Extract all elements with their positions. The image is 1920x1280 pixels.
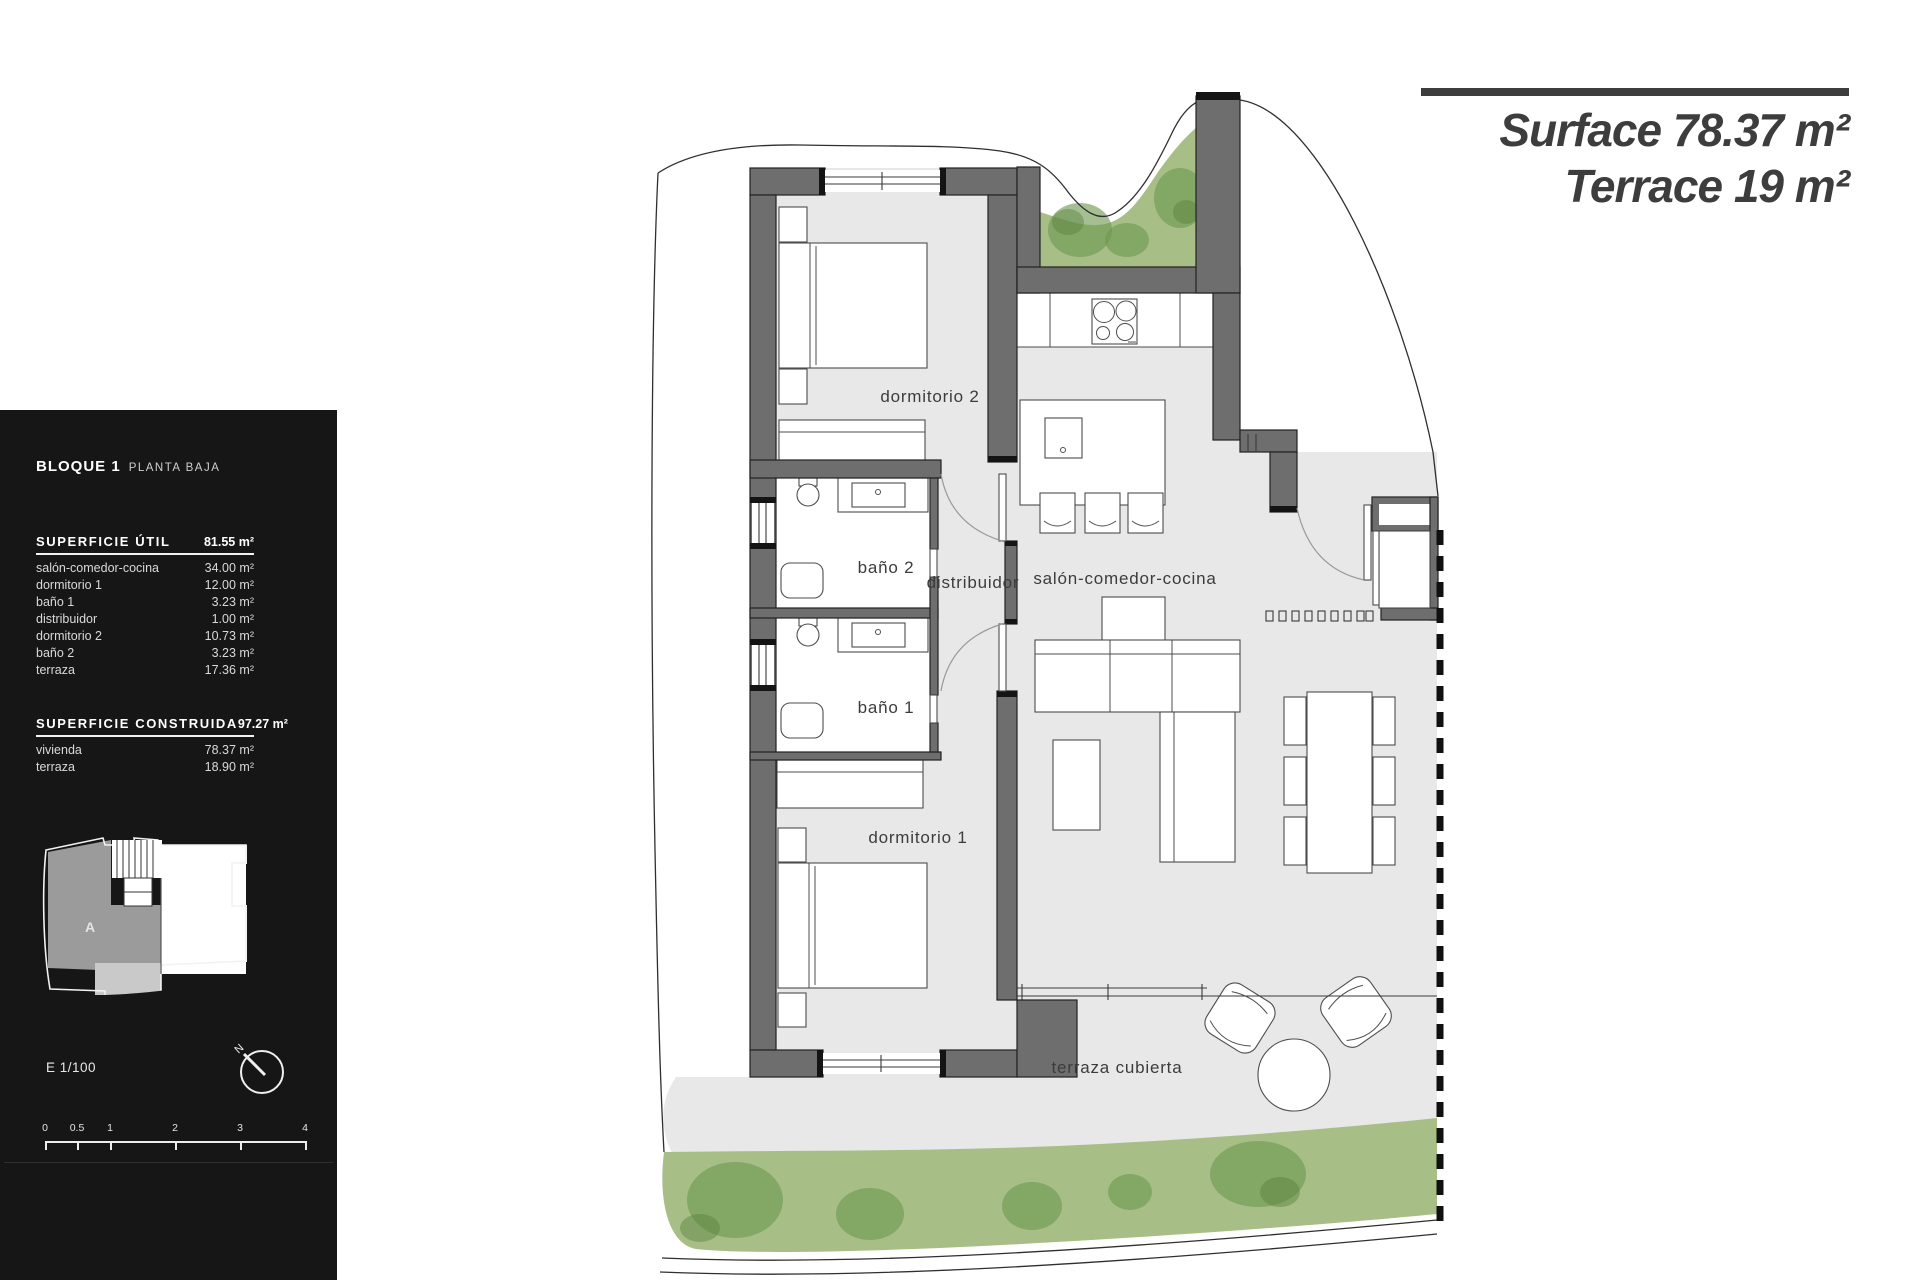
dining-table — [1284, 692, 1395, 873]
garden-top — [1040, 128, 1213, 267]
title-block: Surface 78.37 m² Terrace 19 m² — [1421, 88, 1849, 214]
terrace-line: Terrace 19 m² — [1421, 158, 1849, 214]
construida-total: 97.27 m² — [238, 717, 288, 731]
util-total: 81.55 m² — [204, 535, 254, 549]
kitchen-counter — [1017, 293, 1213, 347]
bedroom1-furniture — [777, 760, 927, 1027]
area-row: distribuidor1.00 m² — [36, 611, 254, 628]
area-row: terraza17.36 m² — [36, 662, 254, 679]
surface-label: Surface — [1499, 104, 1661, 156]
bedroom2-furniture — [779, 207, 927, 468]
room-label-dormitorio-2: dormitorio 2 — [880, 387, 979, 406]
room-label-bano-2: baño 2 — [858, 558, 915, 577]
kitchen-island — [1020, 400, 1165, 533]
room-label-terraza: terraza cubierta — [1052, 1058, 1183, 1077]
area-row: baño 13.23 m² — [36, 594, 254, 611]
block-floor: PLANTA BAJA — [129, 462, 221, 474]
superficie-util-table: SUPERFICIE ÚTIL 81.55 m² salón-comedor-c… — [36, 534, 254, 679]
floor-plan-page: dormitorio 2 baño 2 distribuidor salón-c… — [0, 0, 1920, 1280]
cooktop-icon — [1092, 299, 1137, 344]
terrace-value: 19 m² — [1734, 160, 1849, 212]
block-name: BLOQUE 1 — [36, 458, 121, 475]
compass-icon: N — [228, 1038, 292, 1102]
area-row: terraza18.90 m² — [36, 759, 254, 776]
superficie-construida-table: SUPERFICIE CONSTRUIDA 97.27 m² vivienda7… — [36, 716, 254, 776]
room-label-dormitorio-1: dormitorio 1 — [868, 828, 967, 847]
key-plan-unit-label: A — [85, 919, 95, 935]
block-title: BLOQUE 1PLANTA BAJA — [36, 458, 220, 476]
util-header: SUPERFICIE ÚTIL — [36, 534, 171, 549]
scale-bar: 0 0.5 1 2 3 4 — [0, 1122, 337, 1164]
area-row: vivienda78.37 m² — [36, 742, 254, 759]
surface-value: 78.37 m² — [1673, 104, 1849, 156]
key-plan: A — [28, 828, 263, 1023]
info-panel: BLOQUE 1PLANTA BAJA SUPERFICIE ÚTIL 81.5… — [0, 410, 337, 1280]
plot-boundary-left — [652, 173, 664, 1152]
area-row: dormitorio 112.00 m² — [36, 577, 254, 594]
terrace-label: Terrace — [1565, 160, 1723, 212]
room-label-salon: salón-comedor-cocina — [1033, 569, 1216, 588]
room-label-bano-1: baño 1 — [858, 698, 915, 717]
surface-line: Surface 78.37 m² — [1421, 102, 1849, 158]
scale-text: E 1/100 — [46, 1060, 96, 1075]
construida-header: SUPERFICIE CONSTRUIDA — [36, 716, 238, 731]
round-table — [1258, 1039, 1330, 1111]
area-row: baño 23.23 m² — [36, 645, 254, 662]
area-row: salón-comedor-cocina34.00 m² — [36, 560, 254, 577]
room-label-distribuidor: distribuidor — [927, 573, 1020, 592]
title-rule — [1421, 88, 1849, 96]
panel-divider — [4, 1162, 333, 1163]
area-row: dormitorio 210.73 m² — [36, 628, 254, 645]
